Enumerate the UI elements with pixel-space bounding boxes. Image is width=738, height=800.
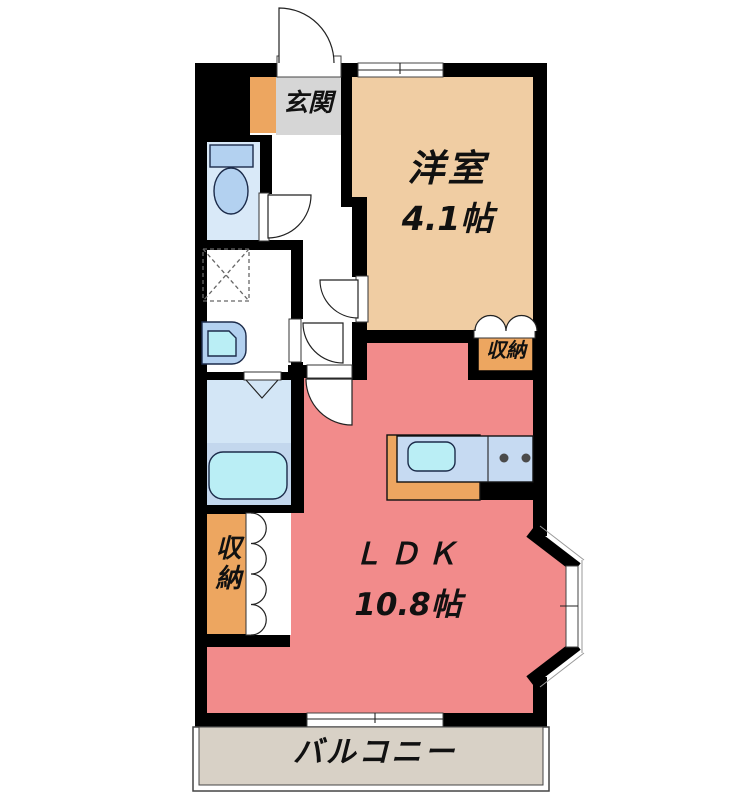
washroom-door-swing	[303, 323, 343, 363]
entrance-door-swing	[279, 8, 334, 63]
kitchen-sink	[408, 442, 455, 471]
washbasin	[202, 322, 246, 364]
bath-door-opening	[244, 372, 281, 380]
washing-machine-pan	[203, 249, 249, 301]
bathtub	[209, 452, 287, 499]
western-room-label: 洋室	[375, 150, 520, 189]
ldk-door-opening	[307, 365, 352, 378]
genkan-label: 玄関	[272, 90, 344, 116]
floor-plan-drawing	[0, 0, 738, 800]
toilet-door-swing	[268, 195, 311, 238]
balcony-label: バルコニー	[245, 737, 505, 769]
floor-plan: 玄関 洋室 4.1帖 収納 ＬＤＫ 10.8帖 収納 バルコニー	[0, 0, 738, 800]
top-window	[358, 63, 443, 77]
west-storage-label: 収納	[476, 340, 536, 361]
ldk-storage-label: 収納	[209, 534, 239, 620]
sliding-window	[307, 713, 443, 727]
ldk-size: 10.8帖	[333, 589, 483, 622]
ldk-label: ＬＤＫ	[338, 539, 478, 571]
west-storage-opening	[474, 330, 535, 338]
stove-burner	[522, 454, 531, 463]
western-room-door-swing	[320, 280, 358, 318]
ldk-storage-folding-door	[251, 513, 266, 635]
washroom-door-leaf	[289, 319, 301, 362]
western-room-size: 4.1帖	[375, 202, 520, 237]
stove-burner	[500, 454, 509, 463]
